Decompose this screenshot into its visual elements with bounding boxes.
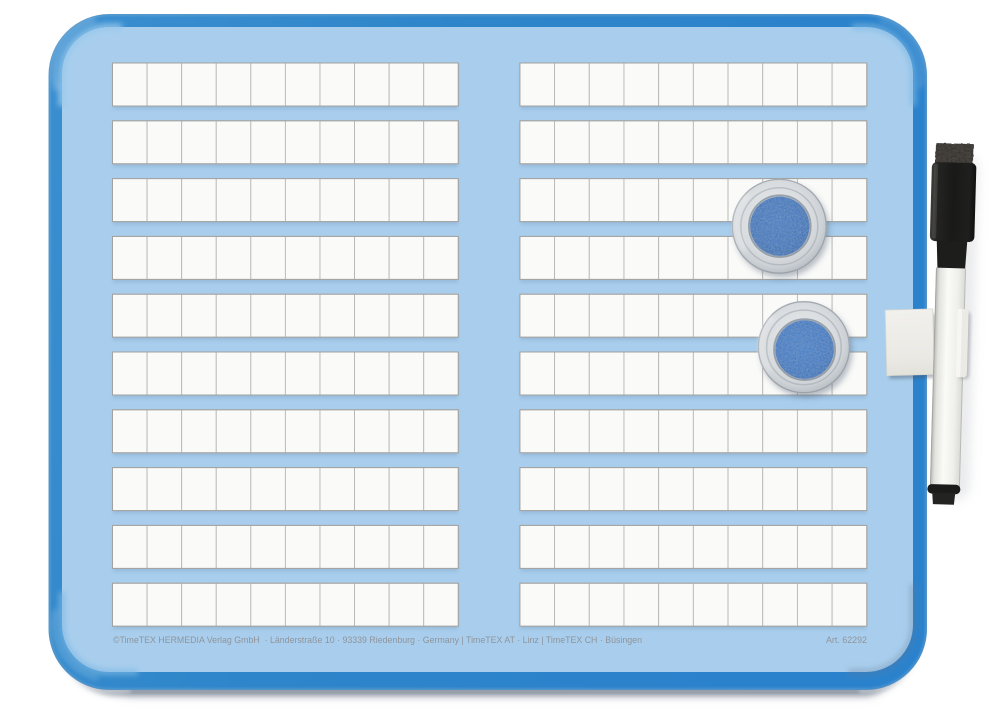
svg-text:©TimeTEX HERMEDIA Verlag GmbH: ©TimeTEX HERMEDIA Verlag GmbH · Länderst… [113, 634, 642, 645]
svg-text:Art. 62292: Art. 62292 [826, 634, 867, 645]
